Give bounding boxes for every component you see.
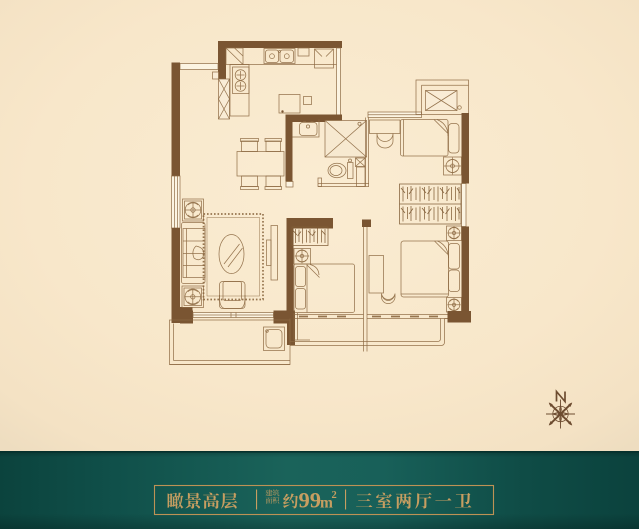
svg-text:99: 99 [299,488,322,513]
svg-text:2: 2 [332,490,337,501]
